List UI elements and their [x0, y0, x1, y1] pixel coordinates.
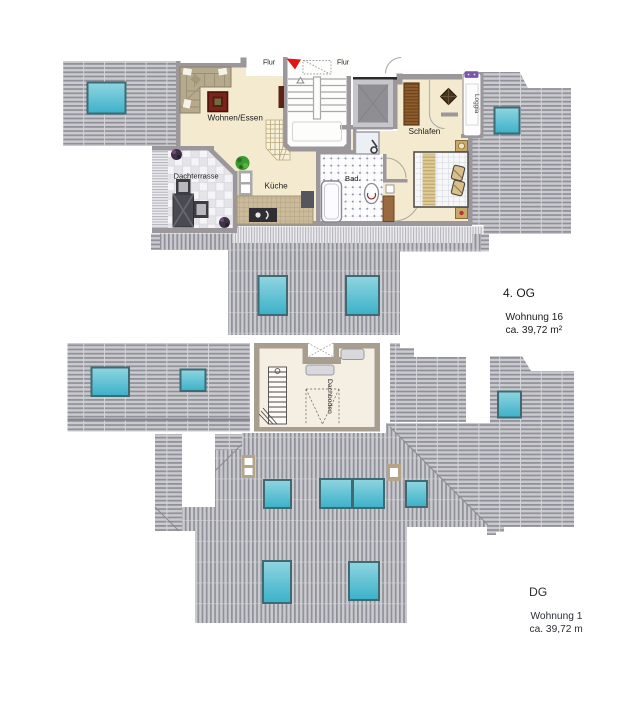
svg-text:Loggia: Loggia — [473, 94, 480, 114]
svg-text:Dachboden: Dachboden — [326, 379, 333, 414]
svg-text:Dachterrasse: Dachterrasse — [174, 172, 219, 181]
svg-text:4. OG: 4. OG — [503, 286, 535, 300]
svg-text:ca. 39,72 m: ca. 39,72 m — [530, 624, 583, 635]
svg-text:Bad.: Bad. — [345, 174, 361, 183]
svg-text:DG: DG — [529, 585, 547, 599]
svg-text:Flur: Flur — [263, 60, 276, 67]
svg-text:Wohnen/Essen: Wohnen/Essen — [208, 114, 264, 123]
svg-text:Schlafen: Schlafen — [409, 127, 441, 136]
svg-text:Küche: Küche — [265, 182, 289, 191]
svg-text:Flur: Flur — [337, 60, 350, 67]
svg-text:Wohnung 16: Wohnung 16 — [506, 312, 564, 323]
svg-text:ca. 39,72 m²: ca. 39,72 m² — [506, 325, 563, 336]
svg-text:Wohnung 1: Wohnung 1 — [531, 611, 583, 622]
